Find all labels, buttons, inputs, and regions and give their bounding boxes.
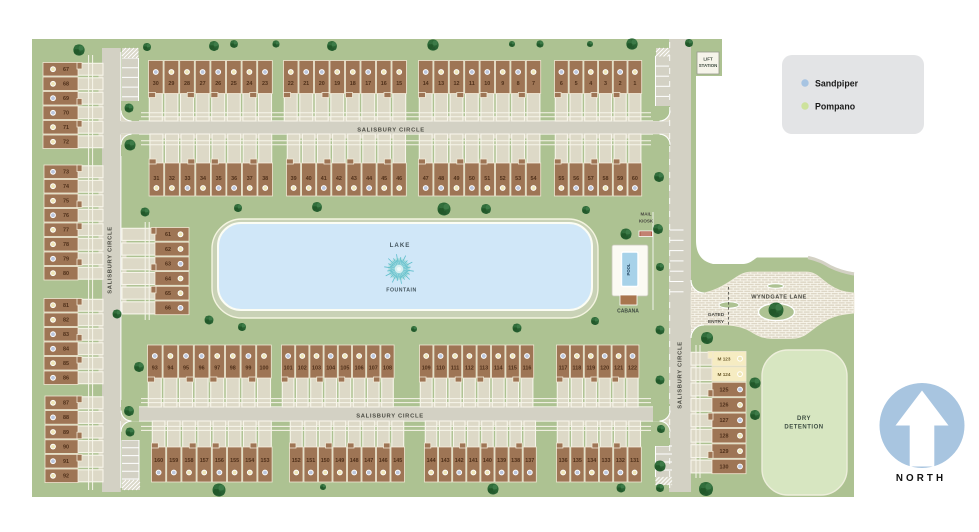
- svg-text:KIOSK: KIOSK: [639, 219, 654, 224]
- svg-text:2: 2: [619, 81, 622, 87]
- svg-text:92: 92: [63, 474, 69, 480]
- svg-text:DETENTION: DETENTION: [784, 425, 823, 431]
- svg-text:15: 15: [396, 81, 402, 87]
- svg-text:119: 119: [586, 365, 595, 371]
- svg-text:135: 135: [573, 458, 582, 464]
- svg-text:106: 106: [355, 365, 364, 371]
- svg-text:77: 77: [63, 228, 69, 234]
- svg-text:74: 74: [63, 184, 69, 190]
- svg-text:76: 76: [63, 213, 69, 219]
- svg-text:28: 28: [184, 81, 190, 87]
- svg-text:5: 5: [575, 81, 578, 87]
- svg-text:25: 25: [231, 81, 237, 87]
- svg-text:SALISBURY CIRCLE: SALISBURY CIRCLE: [108, 226, 114, 294]
- svg-text:26: 26: [215, 81, 221, 87]
- svg-text:150: 150: [321, 458, 330, 464]
- svg-text:160: 160: [154, 458, 163, 464]
- svg-text:125: 125: [720, 387, 729, 393]
- svg-text:137: 137: [525, 458, 534, 464]
- svg-text:49: 49: [454, 176, 460, 182]
- svg-text:93: 93: [152, 365, 158, 371]
- svg-text:95: 95: [183, 365, 189, 371]
- svg-text:59: 59: [617, 176, 623, 182]
- svg-text:23: 23: [262, 81, 268, 87]
- svg-text:73: 73: [63, 170, 69, 176]
- svg-text:122: 122: [628, 365, 637, 371]
- svg-text:47: 47: [423, 176, 429, 182]
- svg-text:101: 101: [284, 365, 293, 371]
- svg-text:46: 46: [396, 176, 402, 182]
- svg-text:11: 11: [469, 81, 475, 87]
- svg-text:32: 32: [169, 176, 175, 182]
- svg-text:39: 39: [291, 176, 297, 182]
- svg-text:44: 44: [366, 176, 372, 182]
- svg-text:103: 103: [312, 365, 321, 371]
- svg-text:CABANA: CABANA: [617, 309, 639, 315]
- svg-text:153: 153: [261, 458, 270, 464]
- svg-text:96: 96: [199, 365, 205, 371]
- svg-text:65: 65: [165, 291, 171, 297]
- svg-text:7: 7: [532, 81, 535, 87]
- svg-text:70: 70: [63, 111, 69, 117]
- svg-text:118: 118: [573, 365, 582, 371]
- svg-text:97: 97: [214, 365, 220, 371]
- svg-text:LAKE: LAKE: [390, 242, 411, 249]
- svg-text:84: 84: [63, 347, 69, 353]
- svg-text:1: 1: [633, 81, 636, 87]
- svg-text:102: 102: [298, 365, 307, 371]
- svg-text:38: 38: [262, 176, 268, 182]
- svg-text:62: 62: [165, 247, 171, 253]
- svg-text:40: 40: [306, 176, 312, 182]
- svg-text:139: 139: [497, 458, 506, 464]
- svg-text:89: 89: [63, 430, 69, 436]
- svg-text:128: 128: [720, 434, 729, 440]
- svg-text:158: 158: [185, 458, 194, 464]
- svg-text:111: 111: [451, 365, 459, 371]
- svg-text:91: 91: [63, 459, 69, 465]
- svg-text:138: 138: [511, 458, 520, 464]
- svg-text:M 123: M 123: [717, 357, 730, 362]
- svg-text:34: 34: [200, 176, 206, 182]
- svg-text:152: 152: [292, 458, 301, 464]
- svg-text:100: 100: [260, 365, 269, 371]
- svg-text:143: 143: [441, 458, 450, 464]
- svg-text:113: 113: [479, 365, 488, 371]
- svg-text:66: 66: [165, 306, 171, 312]
- svg-text:SALISBURY CIRCLE: SALISBURY CIRCLE: [356, 414, 424, 420]
- svg-text:13: 13: [438, 81, 444, 87]
- svg-text:19: 19: [334, 81, 340, 87]
- svg-text:SALISBURY CIRCLE: SALISBURY CIRCLE: [678, 341, 684, 409]
- svg-text:81: 81: [63, 303, 69, 309]
- svg-text:10: 10: [484, 81, 490, 87]
- svg-text:68: 68: [63, 82, 69, 88]
- svg-text:12: 12: [454, 81, 460, 87]
- svg-text:72: 72: [63, 140, 69, 146]
- svg-text:148: 148: [350, 458, 359, 464]
- svg-text:67: 67: [63, 67, 69, 73]
- svg-text:57: 57: [588, 176, 594, 182]
- svg-text:33: 33: [185, 176, 191, 182]
- svg-text:129: 129: [720, 449, 729, 455]
- svg-text:9: 9: [501, 81, 504, 87]
- svg-text:16: 16: [381, 81, 387, 87]
- svg-text:6: 6: [560, 81, 563, 87]
- svg-text:50: 50: [469, 176, 475, 182]
- svg-text:78: 78: [63, 242, 69, 248]
- svg-text:155: 155: [230, 458, 239, 464]
- svg-text:18: 18: [350, 81, 356, 87]
- svg-text:87: 87: [63, 401, 69, 407]
- svg-text:79: 79: [63, 257, 69, 263]
- svg-text:156: 156: [215, 458, 224, 464]
- svg-text:136: 136: [559, 458, 568, 464]
- svg-text:109: 109: [422, 365, 431, 371]
- svg-text:54: 54: [531, 176, 537, 182]
- svg-text:45: 45: [381, 176, 387, 182]
- svg-text:GATED: GATED: [708, 312, 725, 318]
- svg-text:51: 51: [484, 176, 490, 182]
- svg-text:SALISBURY CIRCLE: SALISBURY CIRCLE: [357, 128, 425, 134]
- svg-text:154: 154: [245, 458, 254, 464]
- svg-text:FOUNTAIN: FOUNTAIN: [386, 288, 416, 294]
- svg-text:99: 99: [245, 365, 251, 371]
- svg-text:151: 151: [306, 458, 315, 464]
- svg-text:107: 107: [369, 365, 378, 371]
- svg-text:130: 130: [720, 464, 729, 470]
- svg-text:POOL: POOL: [626, 263, 631, 275]
- svg-text:41: 41: [321, 176, 327, 182]
- svg-text:37: 37: [247, 176, 253, 182]
- svg-text:114: 114: [494, 365, 503, 371]
- svg-text:142: 142: [455, 458, 464, 464]
- svg-text:35: 35: [216, 176, 222, 182]
- svg-text:86: 86: [63, 376, 69, 382]
- svg-text:31: 31: [153, 176, 159, 182]
- svg-text:NORTH: NORTH: [896, 473, 946, 484]
- svg-text:ENTRY: ENTRY: [708, 319, 725, 325]
- svg-text:30: 30: [153, 81, 159, 87]
- svg-text:58: 58: [603, 176, 609, 182]
- svg-text:17: 17: [365, 81, 371, 87]
- svg-text:61: 61: [165, 232, 171, 238]
- svg-text:60: 60: [632, 176, 638, 182]
- svg-text:117: 117: [559, 365, 568, 371]
- svg-text:80: 80: [63, 271, 69, 277]
- svg-text:147: 147: [364, 458, 373, 464]
- svg-text:141: 141: [469, 458, 478, 464]
- svg-text:90: 90: [63, 444, 69, 450]
- svg-text:Sandpiper: Sandpiper: [815, 79, 859, 89]
- svg-text:52: 52: [500, 176, 506, 182]
- svg-text:120: 120: [600, 365, 609, 371]
- svg-text:145: 145: [393, 458, 402, 464]
- svg-text:157: 157: [200, 458, 209, 464]
- svg-text:85: 85: [63, 361, 69, 367]
- svg-text:110: 110: [436, 365, 445, 371]
- svg-text:43: 43: [351, 176, 357, 182]
- svg-text:42: 42: [336, 176, 342, 182]
- svg-text:3: 3: [604, 81, 607, 87]
- svg-text:71: 71: [63, 125, 69, 131]
- svg-text:69: 69: [63, 96, 69, 102]
- svg-text:112: 112: [465, 365, 474, 371]
- svg-text:131: 131: [630, 458, 639, 464]
- svg-text:LIFT: LIFT: [703, 57, 713, 62]
- svg-text:27: 27: [200, 81, 206, 87]
- svg-text:133: 133: [602, 458, 611, 464]
- svg-text:83: 83: [63, 332, 69, 338]
- svg-text:146: 146: [379, 458, 388, 464]
- svg-text:144: 144: [427, 458, 436, 464]
- svg-text:8: 8: [517, 81, 520, 87]
- svg-text:Pompano: Pompano: [815, 102, 856, 112]
- svg-text:29: 29: [168, 81, 174, 87]
- svg-text:82: 82: [63, 318, 69, 324]
- svg-text:24: 24: [246, 81, 252, 87]
- svg-text:140: 140: [483, 458, 492, 464]
- svg-text:4: 4: [589, 81, 592, 87]
- svg-text:DRY: DRY: [797, 416, 811, 422]
- svg-text:104: 104: [326, 365, 335, 371]
- svg-text:105: 105: [340, 365, 349, 371]
- svg-text:53: 53: [515, 176, 521, 182]
- svg-text:75: 75: [63, 199, 69, 205]
- svg-text:55: 55: [558, 176, 564, 182]
- svg-text:115: 115: [508, 365, 517, 371]
- svg-text:134: 134: [587, 458, 596, 464]
- svg-text:108: 108: [383, 365, 392, 371]
- svg-text:121: 121: [614, 365, 623, 371]
- svg-text:M 124: M 124: [717, 372, 730, 377]
- svg-text:MAIL: MAIL: [641, 212, 652, 217]
- svg-text:14: 14: [423, 81, 429, 87]
- svg-text:22: 22: [288, 81, 294, 87]
- svg-text:63: 63: [165, 262, 171, 268]
- svg-text:STATION: STATION: [699, 63, 718, 68]
- svg-text:159: 159: [169, 458, 178, 464]
- svg-text:56: 56: [573, 176, 579, 182]
- svg-text:WYNDGATE LANE: WYNDGATE LANE: [751, 295, 807, 301]
- svg-text:94: 94: [167, 365, 173, 371]
- svg-text:98: 98: [230, 365, 236, 371]
- svg-text:88: 88: [63, 415, 69, 421]
- svg-text:127: 127: [720, 418, 729, 424]
- svg-text:21: 21: [303, 81, 309, 87]
- svg-text:149: 149: [335, 458, 344, 464]
- svg-text:116: 116: [523, 365, 532, 371]
- svg-text:64: 64: [165, 276, 171, 282]
- svg-text:48: 48: [438, 176, 444, 182]
- svg-text:36: 36: [231, 176, 237, 182]
- svg-text:126: 126: [720, 403, 729, 409]
- svg-text:132: 132: [616, 458, 625, 464]
- svg-text:20: 20: [319, 81, 325, 87]
